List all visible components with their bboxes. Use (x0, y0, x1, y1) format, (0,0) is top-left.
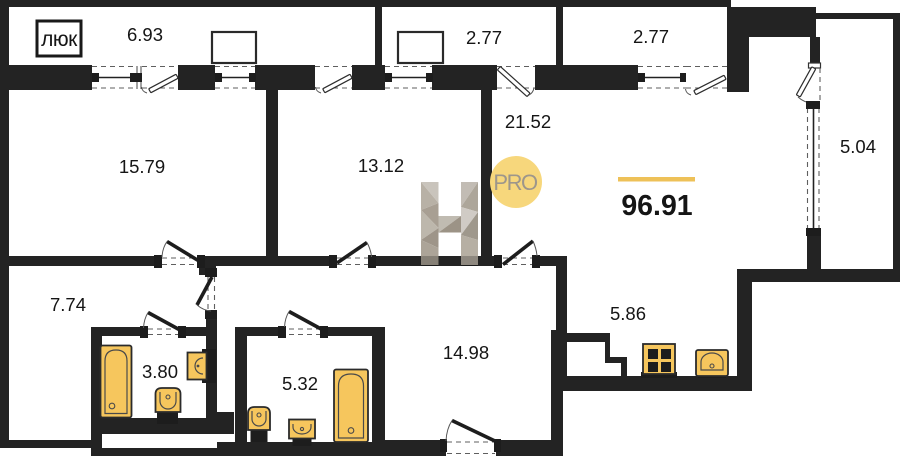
svg-text:15.79: 15.79 (119, 156, 165, 177)
svg-text:14.98: 14.98 (443, 342, 489, 363)
svg-text:7.74: 7.74 (50, 294, 86, 315)
svg-text:2.77: 2.77 (633, 26, 669, 47)
svg-text:96.91: 96.91 (621, 190, 692, 222)
svg-text:5.04: 5.04 (840, 136, 876, 157)
svg-text:5.86: 5.86 (610, 303, 646, 324)
svg-text:3.80: 3.80 (142, 361, 178, 382)
svg-text:6.93: 6.93 (127, 24, 163, 45)
svg-text:2.77: 2.77 (466, 27, 502, 48)
svg-text:люк: люк (41, 28, 78, 51)
svg-text:21.52: 21.52 (505, 111, 551, 132)
svg-text:13.12: 13.12 (358, 155, 404, 176)
svg-text:PRO: PRO (493, 170, 538, 195)
svg-text:5.32: 5.32 (282, 373, 318, 394)
